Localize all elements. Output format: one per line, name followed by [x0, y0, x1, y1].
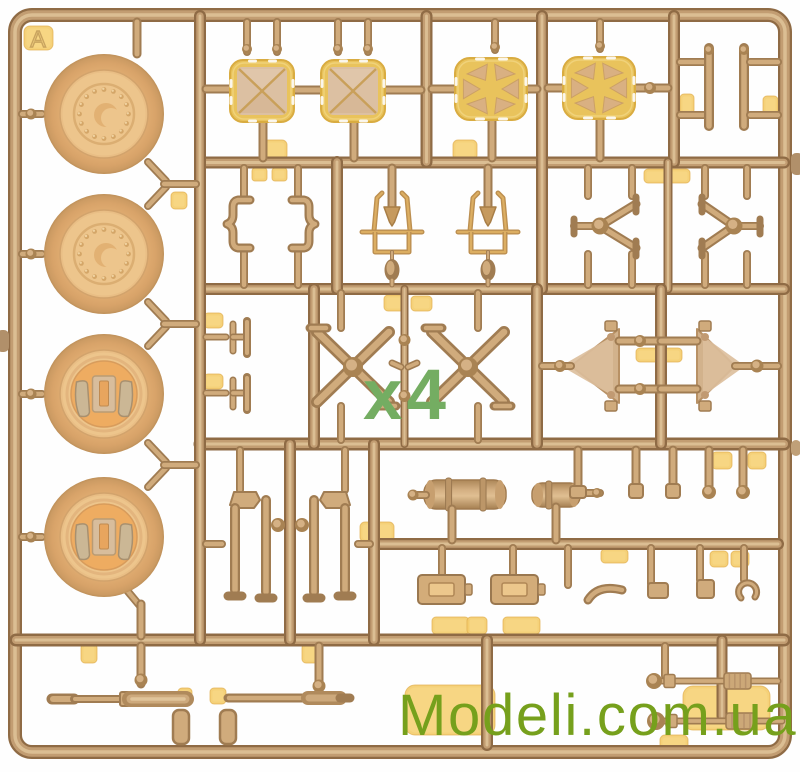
svg-text:Modeli.com.ua: Modeli.com.ua	[398, 683, 797, 748]
svg-text:A: A	[30, 26, 46, 52]
svg-text:x4: x4	[363, 356, 450, 435]
